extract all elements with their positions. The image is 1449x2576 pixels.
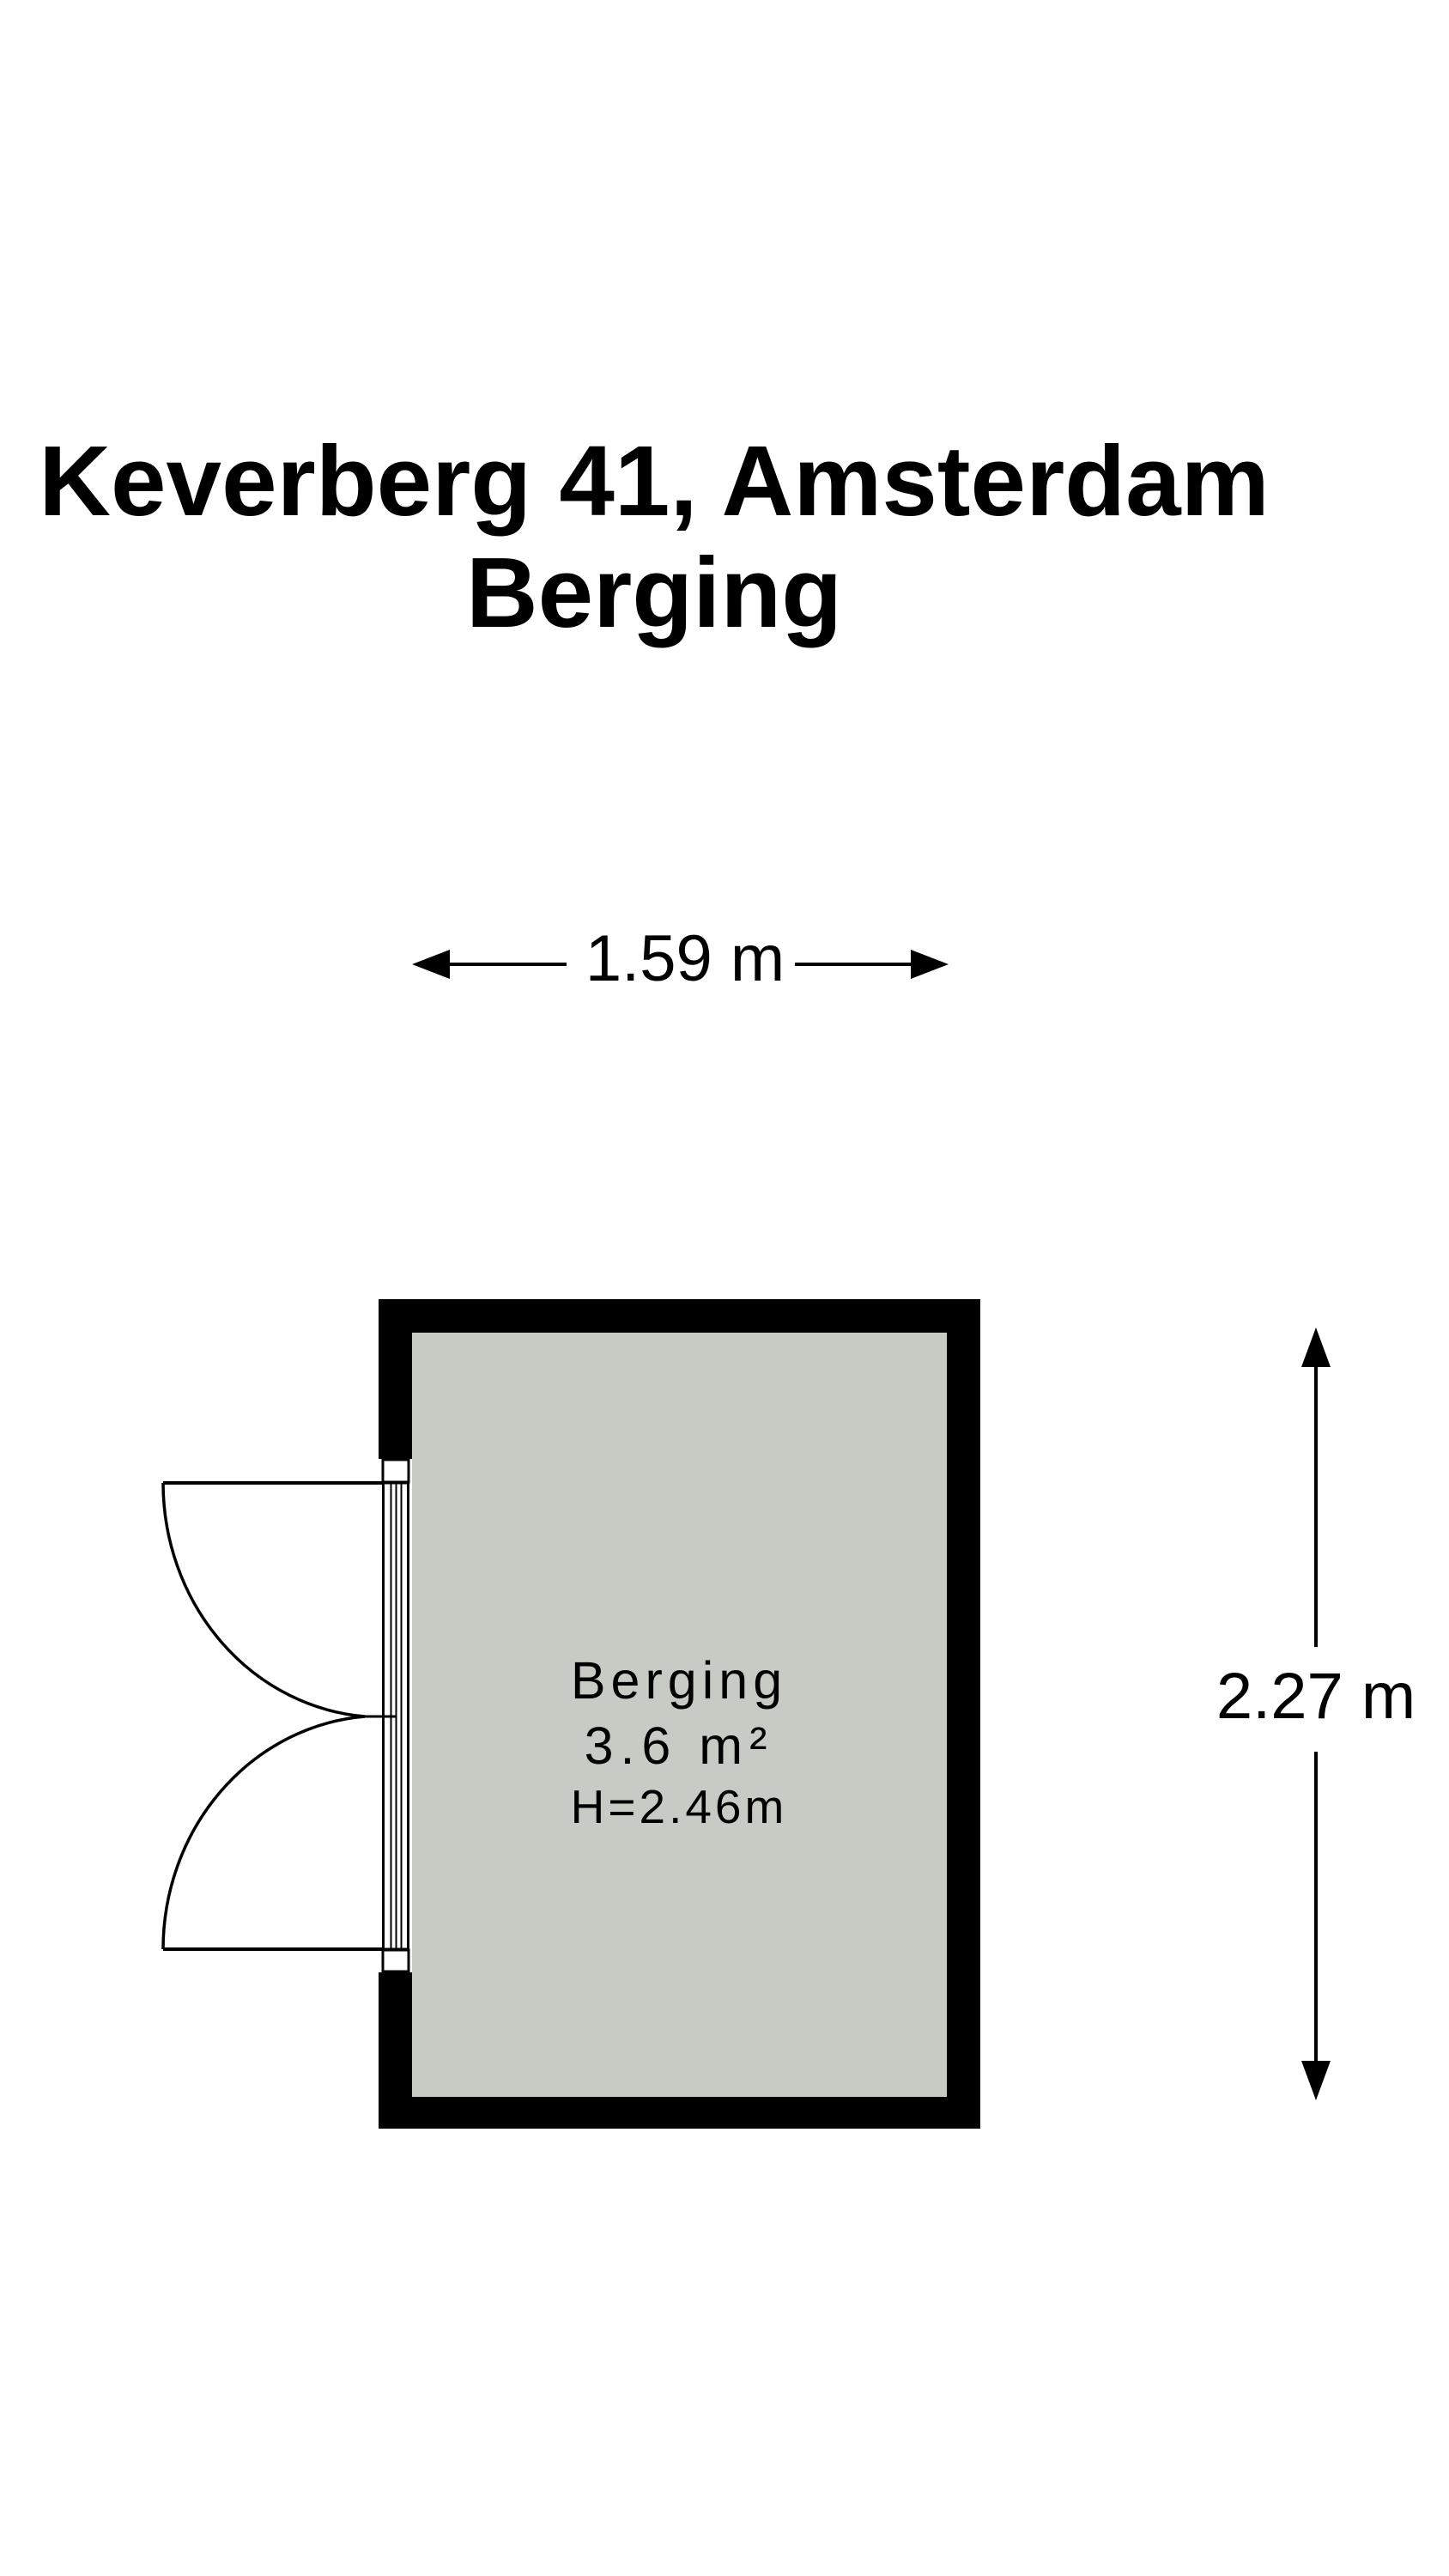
room-ceiling-height-label: H=2.46m bbox=[421, 1778, 937, 1835]
height-dimension-label: 2.27 m bbox=[1179, 1664, 1449, 1729]
arrow-left-icon bbox=[412, 950, 450, 979]
door-swing-arc-top bbox=[163, 1483, 365, 1716]
door-frame-top-block bbox=[383, 1460, 409, 1482]
floorplan-page: Keverberg 41, Amsterdam Berging bbox=[0, 0, 1449, 2576]
door-frame-bottom-block bbox=[383, 1950, 409, 1971]
floorplan-drawing bbox=[0, 0, 1449, 2576]
room-area-label: 3.6 m² bbox=[421, 1713, 937, 1778]
arrow-down-icon bbox=[1301, 2061, 1331, 2100]
width-dimension-label: 1.59 m bbox=[548, 927, 822, 992]
double-door bbox=[163, 1483, 396, 1949]
room-label-block: Berging 3.6 m² H=2.46m bbox=[421, 1648, 937, 1835]
arrow-right-icon bbox=[911, 950, 949, 979]
door-swing-arc-bottom bbox=[163, 1716, 365, 1949]
room-name-label: Berging bbox=[421, 1648, 937, 1713]
arrow-up-icon bbox=[1301, 1327, 1331, 1367]
